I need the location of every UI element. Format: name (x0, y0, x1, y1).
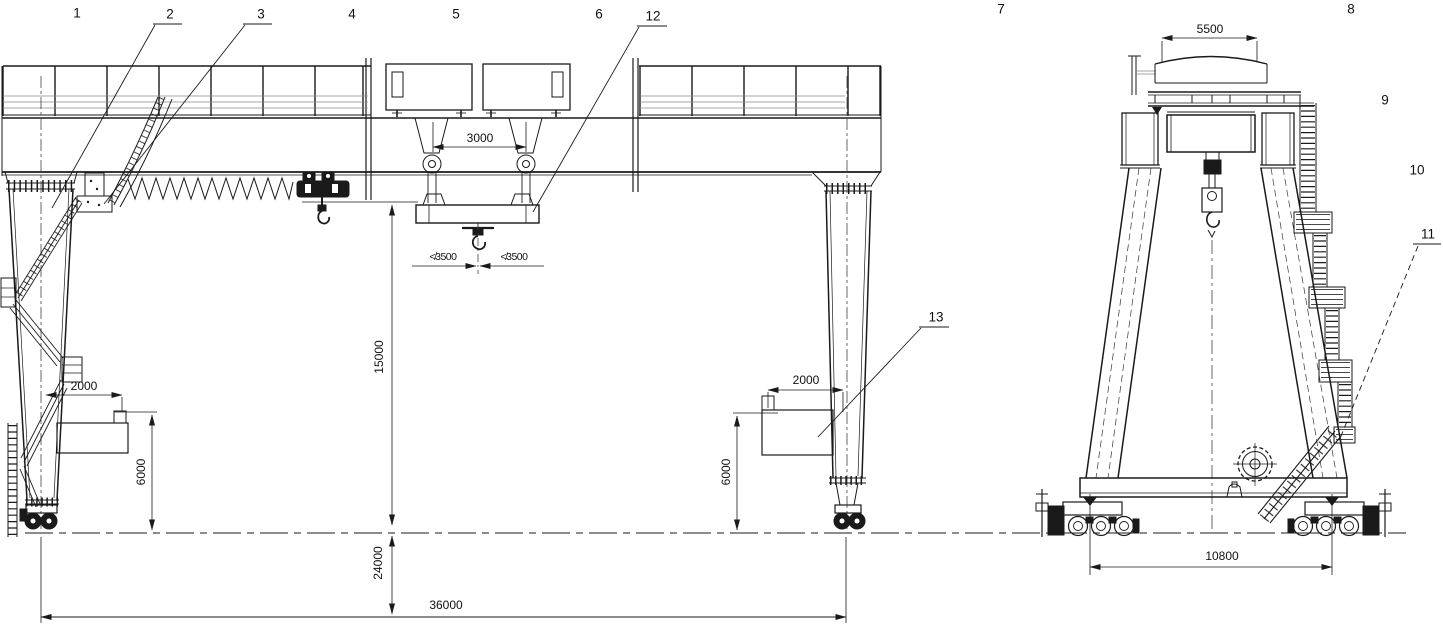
trolley-side (1148, 57, 1314, 107)
gantry-crane-drawing: 1 2 3 4 5 6 12 7 8 9 10 11 13 3000 ≮3500… (0, 0, 1443, 625)
dim-bogie-wheelbase: 10800 (1205, 550, 1238, 562)
part-label-11: 11 (1421, 227, 1435, 241)
girder-side (1152, 107, 1255, 152)
dim-hook-left: ≮3500 (430, 252, 457, 263)
part-label-12: 12 (645, 9, 660, 23)
right-outrigger-bracket (762, 396, 833, 455)
hook-assembly (1202, 152, 1222, 531)
dim-span: 36000 (429, 599, 462, 611)
part-label-1: 1 (73, 6, 81, 20)
right-leg (812, 76, 880, 531)
cable-reel (1227, 443, 1277, 497)
leg-staircase (1258, 103, 1355, 523)
side-view (1036, 38, 1391, 575)
front-view (1, 58, 881, 623)
side-bogie-right (1288, 489, 1391, 537)
dim-trolley-gauge: 3000 (467, 132, 494, 144)
dim-trolley-top-width: 5500 (1197, 23, 1224, 35)
dim-outreach-right: 2000 (793, 374, 820, 386)
left-wheel-bogie (20, 505, 57, 529)
part-label-9: 9 (1381, 93, 1389, 107)
dim-platform-height-left: 6000 (135, 459, 147, 486)
sill-beam (1080, 478, 1347, 497)
dim-below-rail: 24000 (372, 546, 384, 579)
dim-lifting-height: 15000 (373, 340, 385, 373)
part-label-2: 2 (166, 7, 174, 21)
main-girder (2, 58, 881, 200)
part-label-3: 3 (257, 7, 265, 21)
part-label-13: 13 (928, 310, 943, 324)
collector-mast (1128, 56, 1156, 95)
part-label-7: 7 (997, 2, 1005, 16)
side-bogie-left (1036, 489, 1139, 537)
festoon-cable (128, 178, 293, 199)
left-outrigger-bracket (57, 411, 128, 453)
dim-platform-height-right: 6000 (720, 459, 732, 486)
leader-lines (52, 24, 1441, 441)
part-label-10: 10 (1409, 163, 1424, 177)
front-dimensions (41, 122, 846, 623)
dim-outreach-left: 2000 (71, 380, 98, 392)
walkway-railing-left (2, 66, 371, 116)
part-label-5: 5 (452, 7, 460, 21)
service-hoist (297, 172, 349, 224)
part-label-8: 8 (1347, 2, 1355, 16)
part-label-6: 6 (595, 7, 603, 21)
part-label-4: 4 (348, 7, 356, 21)
dim-hook-right: ≮3500 (501, 252, 528, 263)
walkway-railing-right (639, 66, 881, 116)
crane-drawing-canvas (0, 0, 1443, 625)
right-wheel-bogie (834, 505, 865, 529)
left-access-ladder (8, 423, 17, 537)
